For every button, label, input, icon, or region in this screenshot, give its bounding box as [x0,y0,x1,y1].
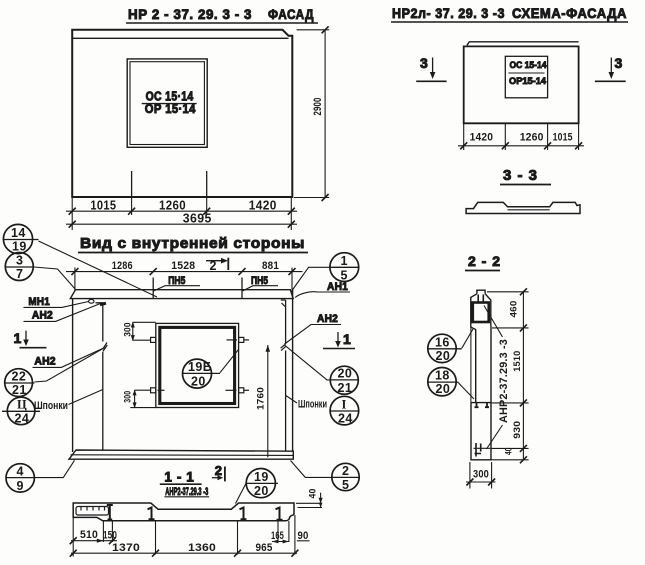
svg-text:3: 3 [615,55,623,71]
svg-text:МН1: МН1 [28,296,50,308]
svg-text:4: 4 [17,465,24,479]
svg-text:3: 3 [420,55,428,71]
svg-text:965: 965 [256,542,273,554]
svg-text:14: 14 [11,226,26,240]
svg-text:19Б: 19Б [188,360,212,374]
svg-text:2900: 2900 [312,98,324,116]
svg-text:ОР 15·14: ОР 15·14 [145,102,196,116]
svg-text:Шпонки: Шпонки [34,400,68,412]
svg-text:1: 1 [343,331,351,347]
svg-text:300: 300 [473,469,489,481]
svg-text:20: 20 [436,382,451,396]
svg-text:20: 20 [254,484,269,498]
svg-text:2: 2 [342,464,349,478]
svg-text:1015: 1015 [90,199,116,213]
svg-text:ФАСАД: ФАСАД [268,6,314,22]
svg-text:18: 18 [435,369,450,383]
svg-text:2: 2 [210,259,217,273]
svg-text:510: 510 [80,529,98,541]
svg-text:1360: 1360 [188,542,216,554]
svg-text:1286: 1286 [112,260,133,272]
svg-text:22: 22 [12,370,27,384]
svg-text:9: 9 [17,479,24,493]
svg-text:1260: 1260 [159,199,186,213]
svg-text:2 - 2: 2 - 2 [468,253,501,269]
svg-text:1528: 1528 [171,260,195,272]
svg-text:НР2л- 37. 29. 3 -3: НР2л- 37. 29. 3 -3 [392,5,505,21]
svg-text:1420: 1420 [249,199,277,213]
svg-text:3: 3 [16,254,23,268]
svg-text:20: 20 [338,367,353,381]
svg-text:40: 40 [307,489,318,499]
svg-text:19: 19 [254,470,269,484]
svg-text:1 - 1: 1 - 1 [164,469,194,485]
svg-text:1: 1 [14,330,22,346]
svg-text:3 - 3: 3 - 3 [503,167,538,184]
svg-text:СХЕМА-ФАСАДА: СХЕМА-ФАСАДА [512,5,627,21]
svg-text:3695: 3695 [183,212,212,226]
svg-text:24: 24 [338,412,353,426]
svg-text:ОС 15-14: ОС 15-14 [510,60,548,71]
svg-text:1420: 1420 [470,132,494,144]
svg-text:Шпонки: Шпонки [298,399,327,411]
svg-text:1015: 1015 [553,132,573,144]
svg-text:Ц: Ц [17,398,27,412]
svg-text:165: 165 [271,530,284,542]
svg-text:930: 930 [512,421,523,439]
svg-text:АН2: АН2 [317,313,338,325]
svg-text:5: 5 [342,478,349,492]
svg-text:1: 1 [341,254,348,268]
svg-text:19: 19 [12,240,27,254]
svg-text:7: 7 [16,267,23,281]
svg-text:I: I [342,398,347,412]
svg-text:150: 150 [103,530,117,542]
svg-text:1260: 1260 [520,132,544,144]
svg-text:20: 20 [191,375,206,389]
svg-text:21: 21 [338,381,353,395]
svg-text:АНР2-37.29.3 -3: АНР2-37.29.3 -3 [498,339,510,423]
svg-text:20: 20 [436,349,451,363]
svg-text:460: 460 [509,301,520,318]
svg-text:1760: 1760 [256,387,267,410]
svg-text:24: 24 [15,412,30,426]
svg-text:21: 21 [12,383,27,397]
svg-text:АН2: АН2 [34,356,55,368]
svg-text:300: 300 [123,391,134,403]
svg-text:40: 40 [503,448,514,456]
svg-text:1510: 1510 [512,351,523,372]
svg-text:ОР15-14: ОР15-14 [509,76,547,87]
svg-text:Вид с внутренней стороны: Вид с внутренней стороны [80,235,305,252]
svg-text:1370: 1370 [112,542,140,554]
svg-text:АН2: АН2 [32,310,53,322]
svg-text:300: 300 [122,322,133,337]
svg-text:НР 2 - 37. 29. 3 - 3: НР 2 - 37. 29. 3 - 3 [128,6,252,22]
svg-text:АН1: АН1 [327,281,348,293]
svg-text:16: 16 [435,336,450,350]
svg-text:90: 90 [298,530,309,542]
svg-text:881: 881 [262,260,279,272]
